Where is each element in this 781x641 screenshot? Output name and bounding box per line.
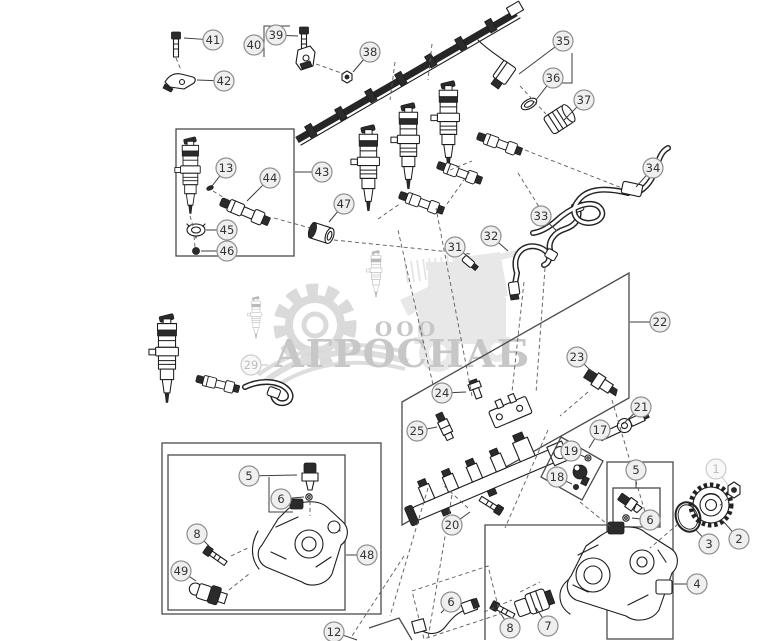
svg-text:6: 6 [646, 513, 653, 527]
callout-49: 49 [171, 561, 196, 581]
connector-cap-37 [543, 103, 577, 135]
svg-text:43: 43 [315, 165, 330, 179]
sensor-49 [187, 579, 229, 608]
connector-tube [475, 130, 523, 157]
svg-text:40: 40 [247, 38, 262, 52]
svg-text:46: 46 [220, 244, 235, 258]
connector-tube [397, 189, 445, 216]
svg-text:25: 25 [410, 424, 425, 438]
svg-text:38: 38 [363, 45, 378, 59]
svg-text:7: 7 [544, 619, 551, 633]
svg-text:1: 1 [712, 462, 719, 476]
callout-22: 22 [630, 312, 670, 332]
callout-4: 4 [674, 574, 707, 594]
svg-text:8: 8 [193, 527, 200, 541]
callout-25: 25 [407, 421, 437, 441]
svg-text:44: 44 [263, 171, 278, 185]
callout-39: 39 [266, 25, 298, 45]
sensor-5-right [617, 492, 644, 515]
nut-38 [342, 71, 352, 83]
callout-44: 44 [247, 168, 280, 201]
callout-24: 24 [432, 383, 466, 403]
callout-8: 8 [500, 614, 520, 638]
fuel-pump-left [252, 499, 347, 585]
svg-text:5: 5 [245, 469, 252, 483]
callout-7: 7 [536, 608, 558, 636]
svg-text:17: 17 [593, 423, 608, 437]
svg-text:6: 6 [277, 492, 284, 506]
callout-5: 5 [239, 466, 297, 486]
clamp-42 [163, 74, 195, 92]
seal-ball-46 [193, 248, 200, 255]
callout-36: 36 [536, 68, 563, 100]
callout-45: 45 [206, 220, 237, 240]
callout-35: 35 [519, 31, 573, 74]
drive-gear-2 [691, 485, 731, 525]
svg-text:4: 4 [693, 577, 700, 591]
callout-47: 47 [329, 194, 354, 222]
callout-42: 42 [197, 71, 234, 91]
nut-1 [728, 482, 740, 498]
callout-20: 20 [442, 512, 470, 535]
bolt-41 [172, 32, 181, 57]
svg-text:12: 12 [327, 625, 342, 639]
svg-text:45: 45 [220, 223, 235, 237]
svg-text:2: 2 [735, 532, 742, 546]
callout-8: 8 [187, 524, 210, 547]
svg-text:6: 6 [447, 595, 454, 609]
svg-text:22: 22 [653, 315, 668, 329]
svg-text:18: 18 [550, 470, 565, 484]
wiring-harness-rail [297, 1, 577, 145]
svg-text:42: 42 [217, 74, 232, 88]
svg-text:20: 20 [445, 518, 460, 532]
fitting-25 [434, 411, 455, 441]
callout-2: 2 [723, 521, 749, 549]
callout-46: 46 [201, 241, 237, 261]
svg-text:3: 3 [705, 537, 712, 551]
harness-connector-35 [489, 60, 517, 91]
parts-diagram: ООО АГРОСНАБ [0, 0, 781, 641]
svg-text:34: 34 [646, 161, 661, 175]
svg-text:23: 23 [570, 350, 585, 364]
svg-text:39: 39 [269, 28, 284, 42]
callout-13: 13 [212, 158, 236, 186]
watermark-name: АГРОСНАБ [274, 331, 530, 376]
svg-text:35: 35 [556, 34, 571, 48]
callout-23: 23 [567, 347, 593, 373]
svg-text:47: 47 [337, 197, 352, 211]
bolt-20 [478, 495, 504, 516]
bolt-8-left [203, 545, 229, 567]
callout-31: 31 [445, 237, 469, 257]
sensor-5-left [302, 463, 318, 490]
callout-37: 37 [564, 90, 594, 120]
svg-text:37: 37 [577, 93, 592, 107]
solenoid-7 [513, 586, 556, 619]
svg-text:5: 5 [632, 463, 639, 477]
callout-48: 48 [346, 545, 377, 565]
svg-text:13: 13 [219, 161, 234, 175]
callout-32: 32 [481, 226, 508, 251]
callout-17: 17 [589, 420, 610, 448]
seal-6-right [623, 515, 629, 521]
callout-19: 19 [561, 441, 585, 461]
fuel-pump-right [560, 522, 677, 620]
connector-seal-36 [519, 96, 538, 112]
fuel-pipe-33 [544, 201, 584, 261]
svg-text:41: 41 [206, 33, 221, 47]
callout-3: 3 [695, 529, 719, 554]
callout-40: 40 [244, 35, 264, 55]
connector-tube [435, 159, 483, 186]
callout-43: 43 [295, 162, 332, 182]
callout-1: 1 [706, 459, 728, 485]
group-box-12 [369, 618, 412, 640]
spacer-47 [307, 222, 336, 245]
svg-text:24: 24 [435, 386, 450, 400]
svg-text:29: 29 [244, 358, 259, 372]
pressure-sensor-23 [582, 367, 621, 399]
callout-41: 41 [184, 30, 223, 50]
svg-text:19: 19 [564, 444, 579, 458]
callout-12: 12 [324, 622, 357, 641]
svg-text:31: 31 [448, 240, 463, 254]
svg-text:21: 21 [634, 400, 649, 414]
svg-text:33: 33 [534, 209, 549, 223]
watermark: ООО АГРОСНАБ [258, 250, 530, 392]
left-injector-group [149, 313, 291, 403]
callout-6: 6 [441, 592, 461, 613]
svg-text:48: 48 [360, 548, 375, 562]
rail-flange [486, 390, 533, 429]
callout-5: 5 [626, 460, 646, 486]
washer-45 [187, 224, 205, 238]
svg-text:32: 32 [484, 229, 499, 243]
bracket-40 [296, 46, 315, 70]
svg-text:8: 8 [506, 621, 513, 635]
callout-38: 38 [353, 42, 380, 72]
svg-text:36: 36 [546, 71, 561, 85]
seal-6-left [306, 494, 312, 500]
callout-18: 18 [547, 467, 572, 487]
svg-text:49: 49 [174, 564, 189, 578]
